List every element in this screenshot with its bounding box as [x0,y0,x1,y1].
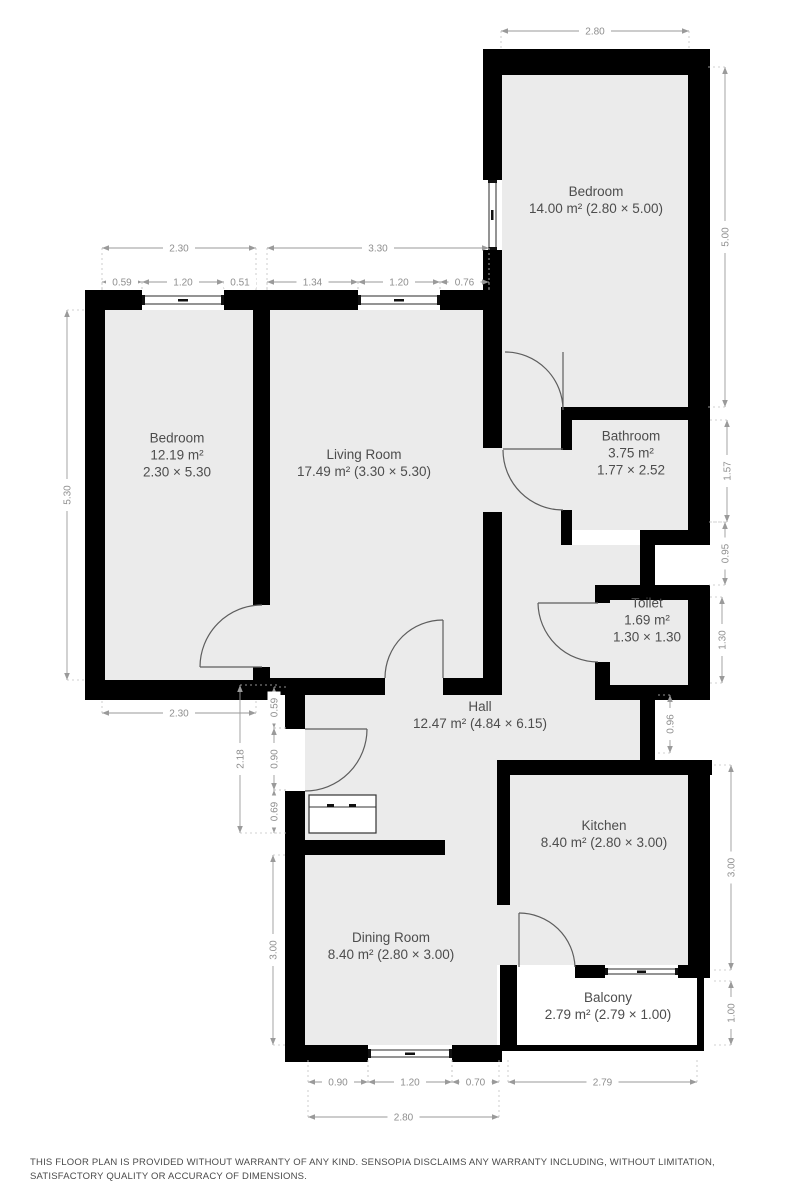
room-label-line: 1.30 × 1.30 [613,630,681,645]
dimension-value: 2.18 [236,749,247,769]
dimension-value: 5.00 [721,227,732,247]
room-label-line: Toilet [631,596,663,611]
dimension-5.30: 5.30 [61,310,86,680]
room-label-line: 12.47 m² (4.84 × 6.15) [413,716,547,731]
room-label-line: 8.40 m² (2.80 × 3.00) [328,947,454,962]
room-label-line: 2.79 m² (2.79 × 1.00) [545,1007,671,1022]
dimension-value: 2.79 [593,1078,613,1089]
dimension-1.34: 1.34 [267,276,358,293]
dimension-value: 1.20 [400,1078,420,1089]
floor-plan: 2.802.303.300.591.200.511.341.200.765.00… [0,0,800,1145]
window-living-room [358,290,440,310]
dimension-value: 1.57 [723,461,734,481]
bedroom-left-floor [105,310,253,680]
dimension-value: 0.90 [270,749,281,769]
dimension-0.90: 0.90 [308,1060,368,1089]
living-room-floor [270,310,483,678]
dimension-value: 1.30 [718,630,729,650]
room-floors [105,75,697,1045]
dimension-1.20: 1.20 [142,276,224,293]
room-label-line: 1.77 × 2.52 [597,463,665,478]
dimension-value: 0.59 [270,697,281,717]
dimension-value: 1.00 [727,1003,738,1023]
dimension-3.00: 3.00 [713,765,738,970]
dimension-5.00: 5.00 [707,67,732,407]
dimension-value: 1.34 [303,278,323,289]
dimension-0.95: 0.95 [709,522,732,585]
floor-plan-svg: 2.802.303.300.591.200.511.341.200.765.00… [0,0,800,1145]
dimension-value: 3.00 [727,857,738,877]
dimension-value: 0.90 [328,1078,348,1089]
room-label-line: Kitchen [581,818,626,833]
dimension-2.79: 2.79 [508,1060,697,1089]
dimension-1.20: 1.20 [368,1060,452,1089]
room-label-line: Living Room [326,447,401,462]
dimension-0.76: 0.76 [440,276,489,293]
dimension-value: 0.96 [666,714,677,734]
dimension-value: 1.20 [173,278,193,289]
dimension-value: 2.30 [169,709,189,720]
room-label-line: 2.30 × 5.30 [143,465,211,480]
dimension-1.30: 1.30 [708,597,729,683]
dimension-value: 1.20 [389,278,409,289]
room-label-line: 12.19 m² [150,448,204,463]
dimension-value: 0.59 [112,278,132,289]
dimension-0.96: 0.96 [658,695,677,753]
dimension-value: 3.30 [368,244,388,255]
dimension-value: 0.70 [466,1078,486,1089]
dimension-value: 2.80 [585,27,605,38]
room-label-line: Hall [468,699,491,714]
dimension-value: 0.51 [230,278,250,289]
dimension-1.57: 1.57 [709,420,734,522]
dimension-value: 2.80 [394,1113,414,1124]
dimension-1.00: 1.00 [713,981,738,1045]
dimension-value: 0.95 [721,543,732,563]
hall-cabinet [309,795,376,833]
window-kitchen [605,965,678,978]
room-label-line: 3.75 m² [608,446,654,461]
room-label-line: 17.49 m² (3.30 × 5.30) [297,464,431,479]
room-label-line: Bathroom [602,429,661,444]
window-bedroom-left [142,290,224,310]
room-label-line: Balcony [584,990,632,1005]
dimension-value: 3.00 [269,940,280,960]
room-label-line: 1.69 m² [624,613,670,628]
dimension-2.30: 2.30 [102,701,256,720]
dimension-0.90: 0.90 [268,728,287,790]
window-dining-room [368,1045,452,1062]
room-label-line: 8.40 m² (2.80 × 3.00) [541,835,667,850]
room-label-bedroom-left: Bedroom12.19 m²2.30 × 5.30 [143,431,211,480]
dimension-value: 0.76 [455,278,475,289]
dimension-value: 2.30 [169,244,189,255]
dimension-0.70: 0.70 [452,1060,499,1089]
dimension-2.80: 2.80 [308,1089,499,1124]
room-label-line: 14.00 m² (2.80 × 5.00) [529,201,663,216]
dimension-3.00: 3.00 [267,855,288,1045]
kitchen-floor [510,775,688,965]
dimension-value: 0.69 [270,801,281,821]
dimension-0.69: 0.69 [268,790,287,833]
dimension-0.59: 0.59 [102,276,142,293]
window-bedroom-top [483,180,502,250]
floor-plan-page: { "document": { "type": "floor-plan", "d… [0,0,800,1200]
room-label-line: Bedroom [569,184,624,199]
dimension-1.20: 1.20 [358,276,440,293]
dimension-2.80: 2.80 [501,25,689,52]
room-label-line: Bedroom [150,431,205,446]
disclaimer-text: THIS FLOOR PLAN IS PROVIDED WITHOUT WARR… [30,1156,730,1185]
dimension-0.51: 0.51 [224,276,256,293]
dimension-value: 5.30 [63,485,74,505]
room-label-line: Dining Room [352,930,430,945]
